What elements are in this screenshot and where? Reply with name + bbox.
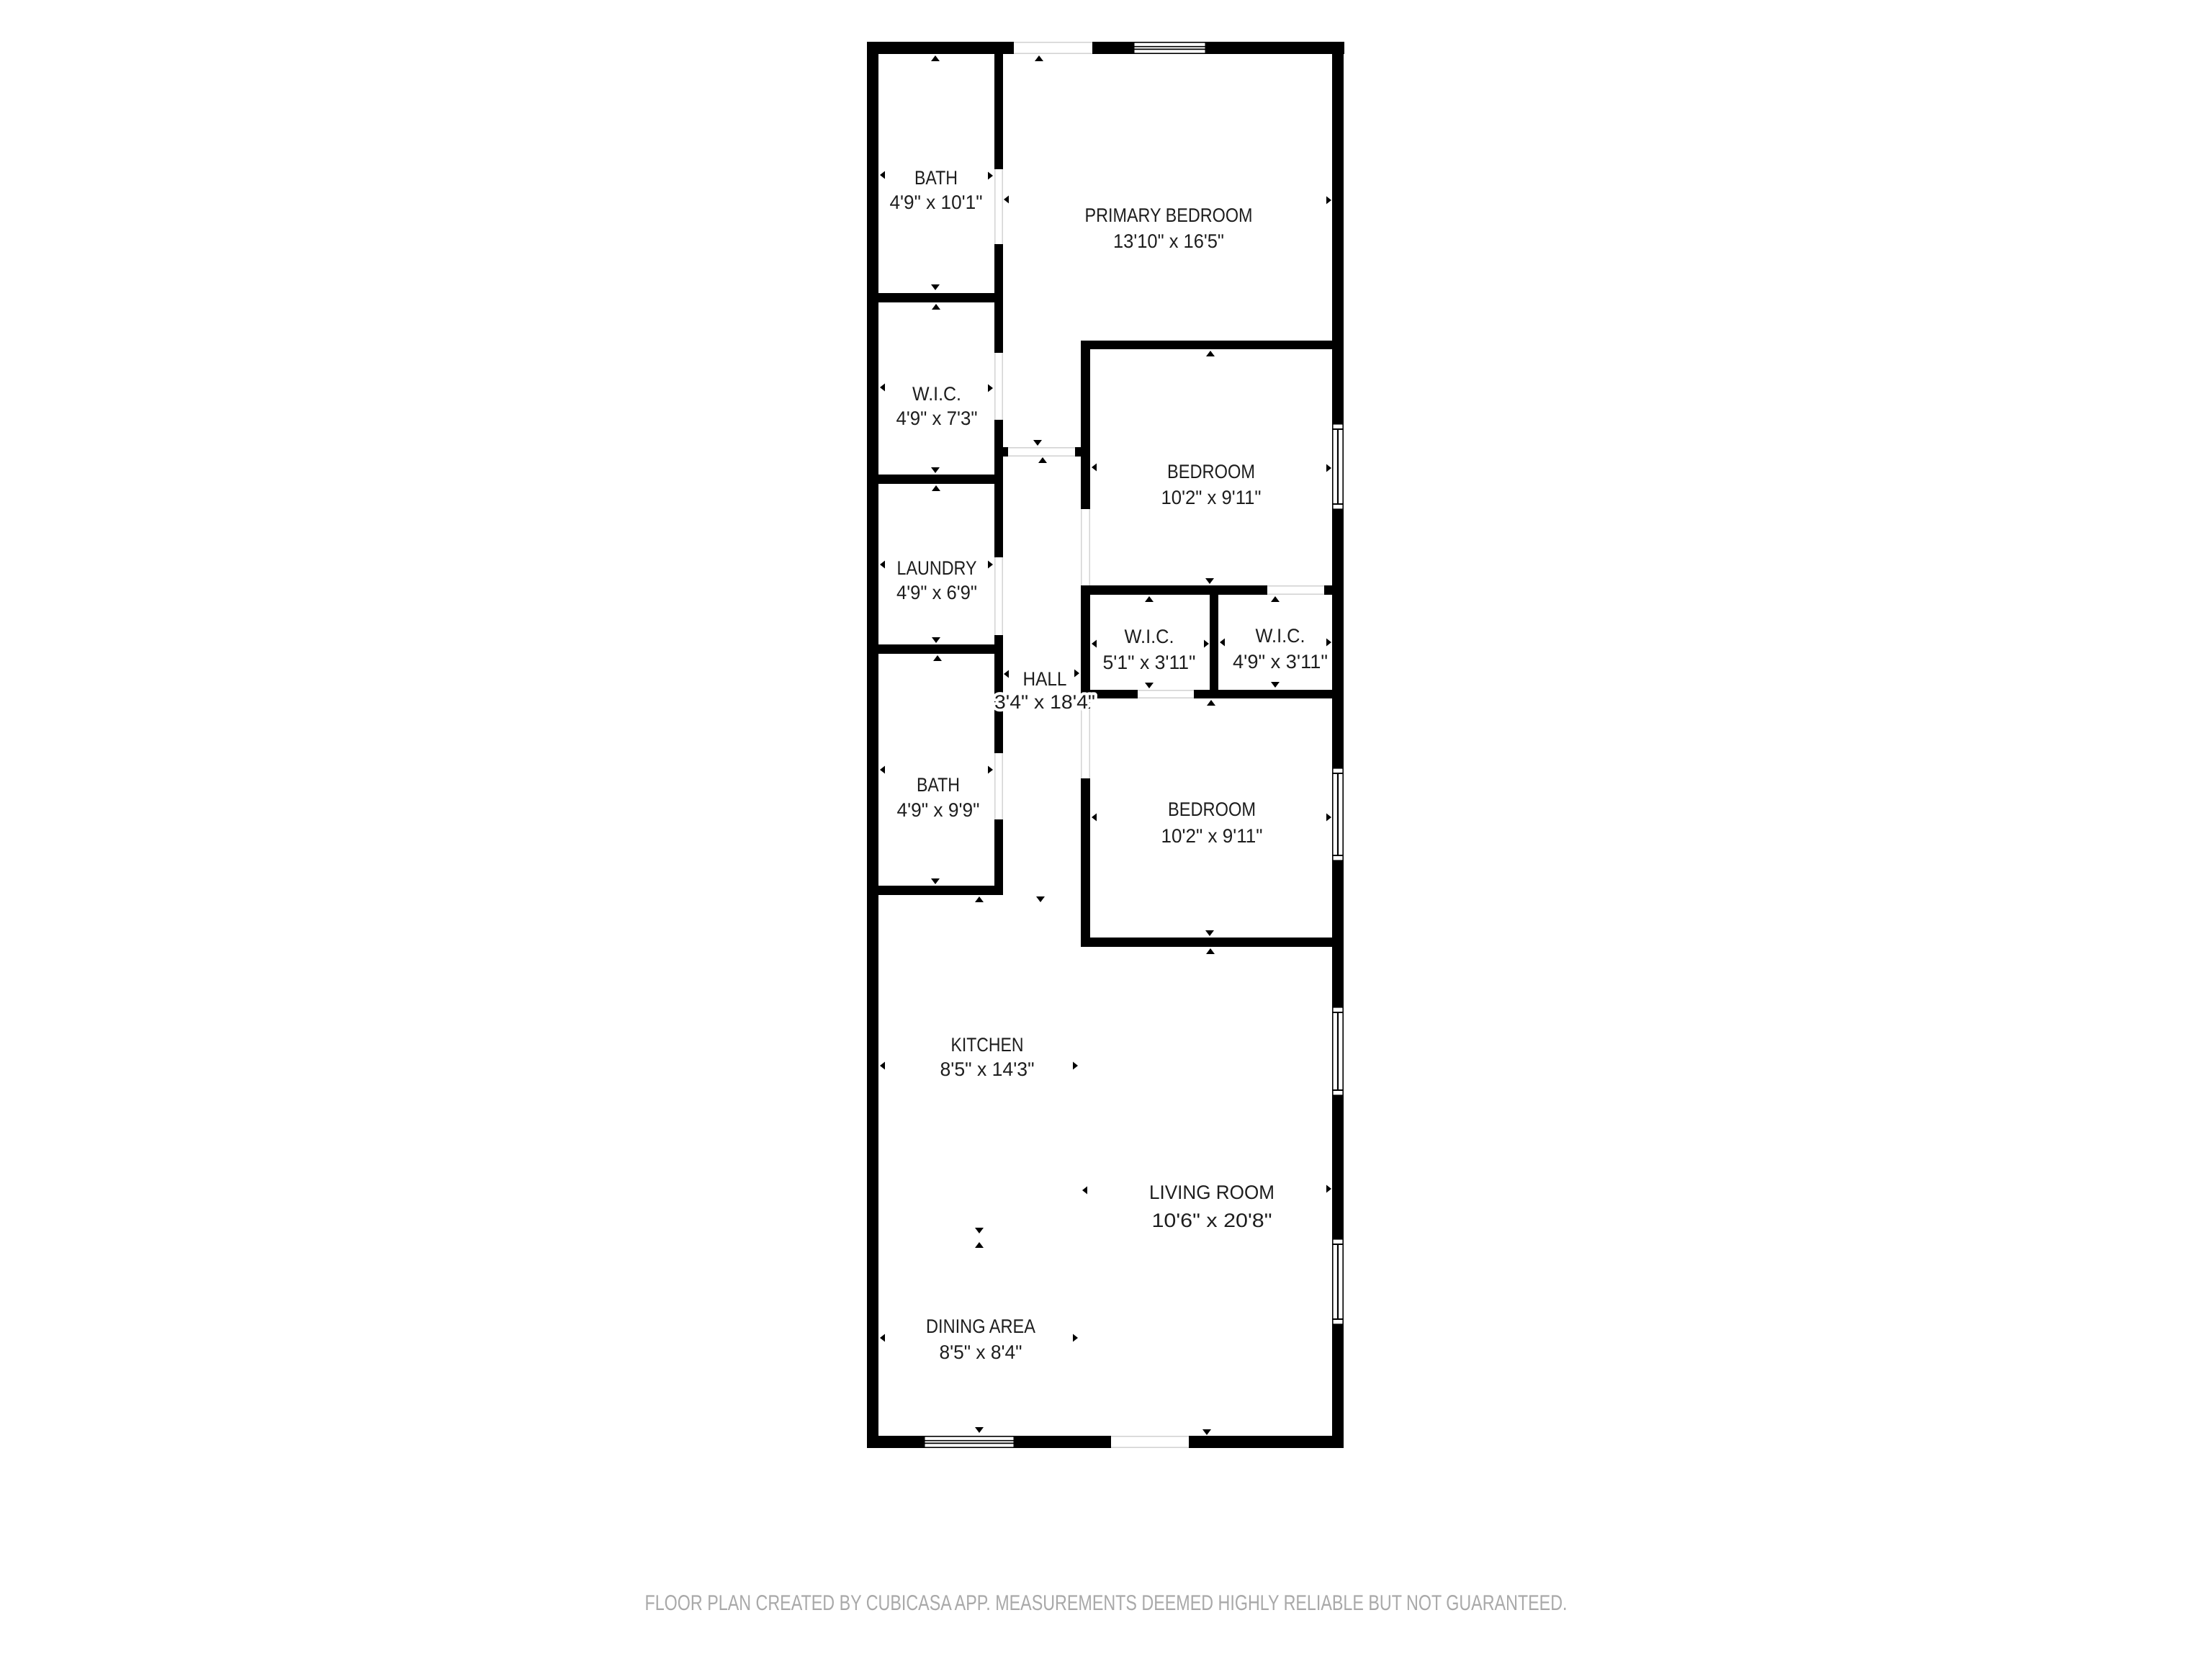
svg-text:10'6" x 20'8": 10'6" x 20'8" bbox=[1152, 1210, 1272, 1231]
svg-text:BATH: BATH bbox=[914, 167, 958, 189]
svg-text:4'9" x 9'9": 4'9" x 9'9" bbox=[897, 799, 980, 821]
svg-text:KITCHEN: KITCHEN bbox=[951, 1034, 1024, 1056]
svg-text:5'1" x 3'11": 5'1" x 3'11" bbox=[1103, 652, 1196, 673]
svg-text:13'10" x 16'5": 13'10" x 16'5" bbox=[1113, 230, 1224, 252]
svg-text:8'5" x 14'3": 8'5" x 14'3" bbox=[940, 1058, 1035, 1080]
svg-text:10'2" x 9'11": 10'2" x 9'11" bbox=[1161, 825, 1263, 847]
svg-text:W.I.C.: W.I.C. bbox=[1256, 625, 1305, 647]
svg-text:HALL: HALL bbox=[1023, 668, 1067, 690]
svg-text:4'9" x 7'3": 4'9" x 7'3" bbox=[896, 408, 978, 429]
svg-text:4'9" x 10'1": 4'9" x 10'1" bbox=[890, 192, 983, 213]
svg-text:PRIMARY BEDROOM: PRIMARY BEDROOM bbox=[1085, 204, 1253, 226]
svg-text:LAUNDRY: LAUNDRY bbox=[897, 557, 977, 579]
svg-text:LIVING ROOM: LIVING ROOM bbox=[1149, 1182, 1274, 1203]
svg-text:8'5" x 8'4": 8'5" x 8'4" bbox=[940, 1341, 1022, 1363]
svg-text:BEDROOM: BEDROOM bbox=[1168, 799, 1256, 820]
svg-text:4'9" x 3'11": 4'9" x 3'11" bbox=[1233, 651, 1328, 673]
svg-text:10'2" x 9'11": 10'2" x 9'11" bbox=[1161, 487, 1262, 508]
svg-text:BATH: BATH bbox=[917, 774, 960, 796]
svg-text:3'4" x 18'4": 3'4" x 18'4" bbox=[994, 691, 1095, 713]
svg-text:BEDROOM: BEDROOM bbox=[1167, 461, 1255, 482]
svg-text:DINING AREA: DINING AREA bbox=[926, 1316, 1035, 1337]
svg-text:FLOOR PLAN CREATED BY CUBICASA: FLOOR PLAN CREATED BY CUBICASA APP. MEAS… bbox=[645, 1591, 1568, 1615]
svg-text:W.I.C.: W.I.C. bbox=[912, 383, 961, 405]
svg-text:4'9" x 6'9": 4'9" x 6'9" bbox=[896, 582, 977, 603]
svg-text:W.I.C.: W.I.C. bbox=[1125, 626, 1174, 647]
